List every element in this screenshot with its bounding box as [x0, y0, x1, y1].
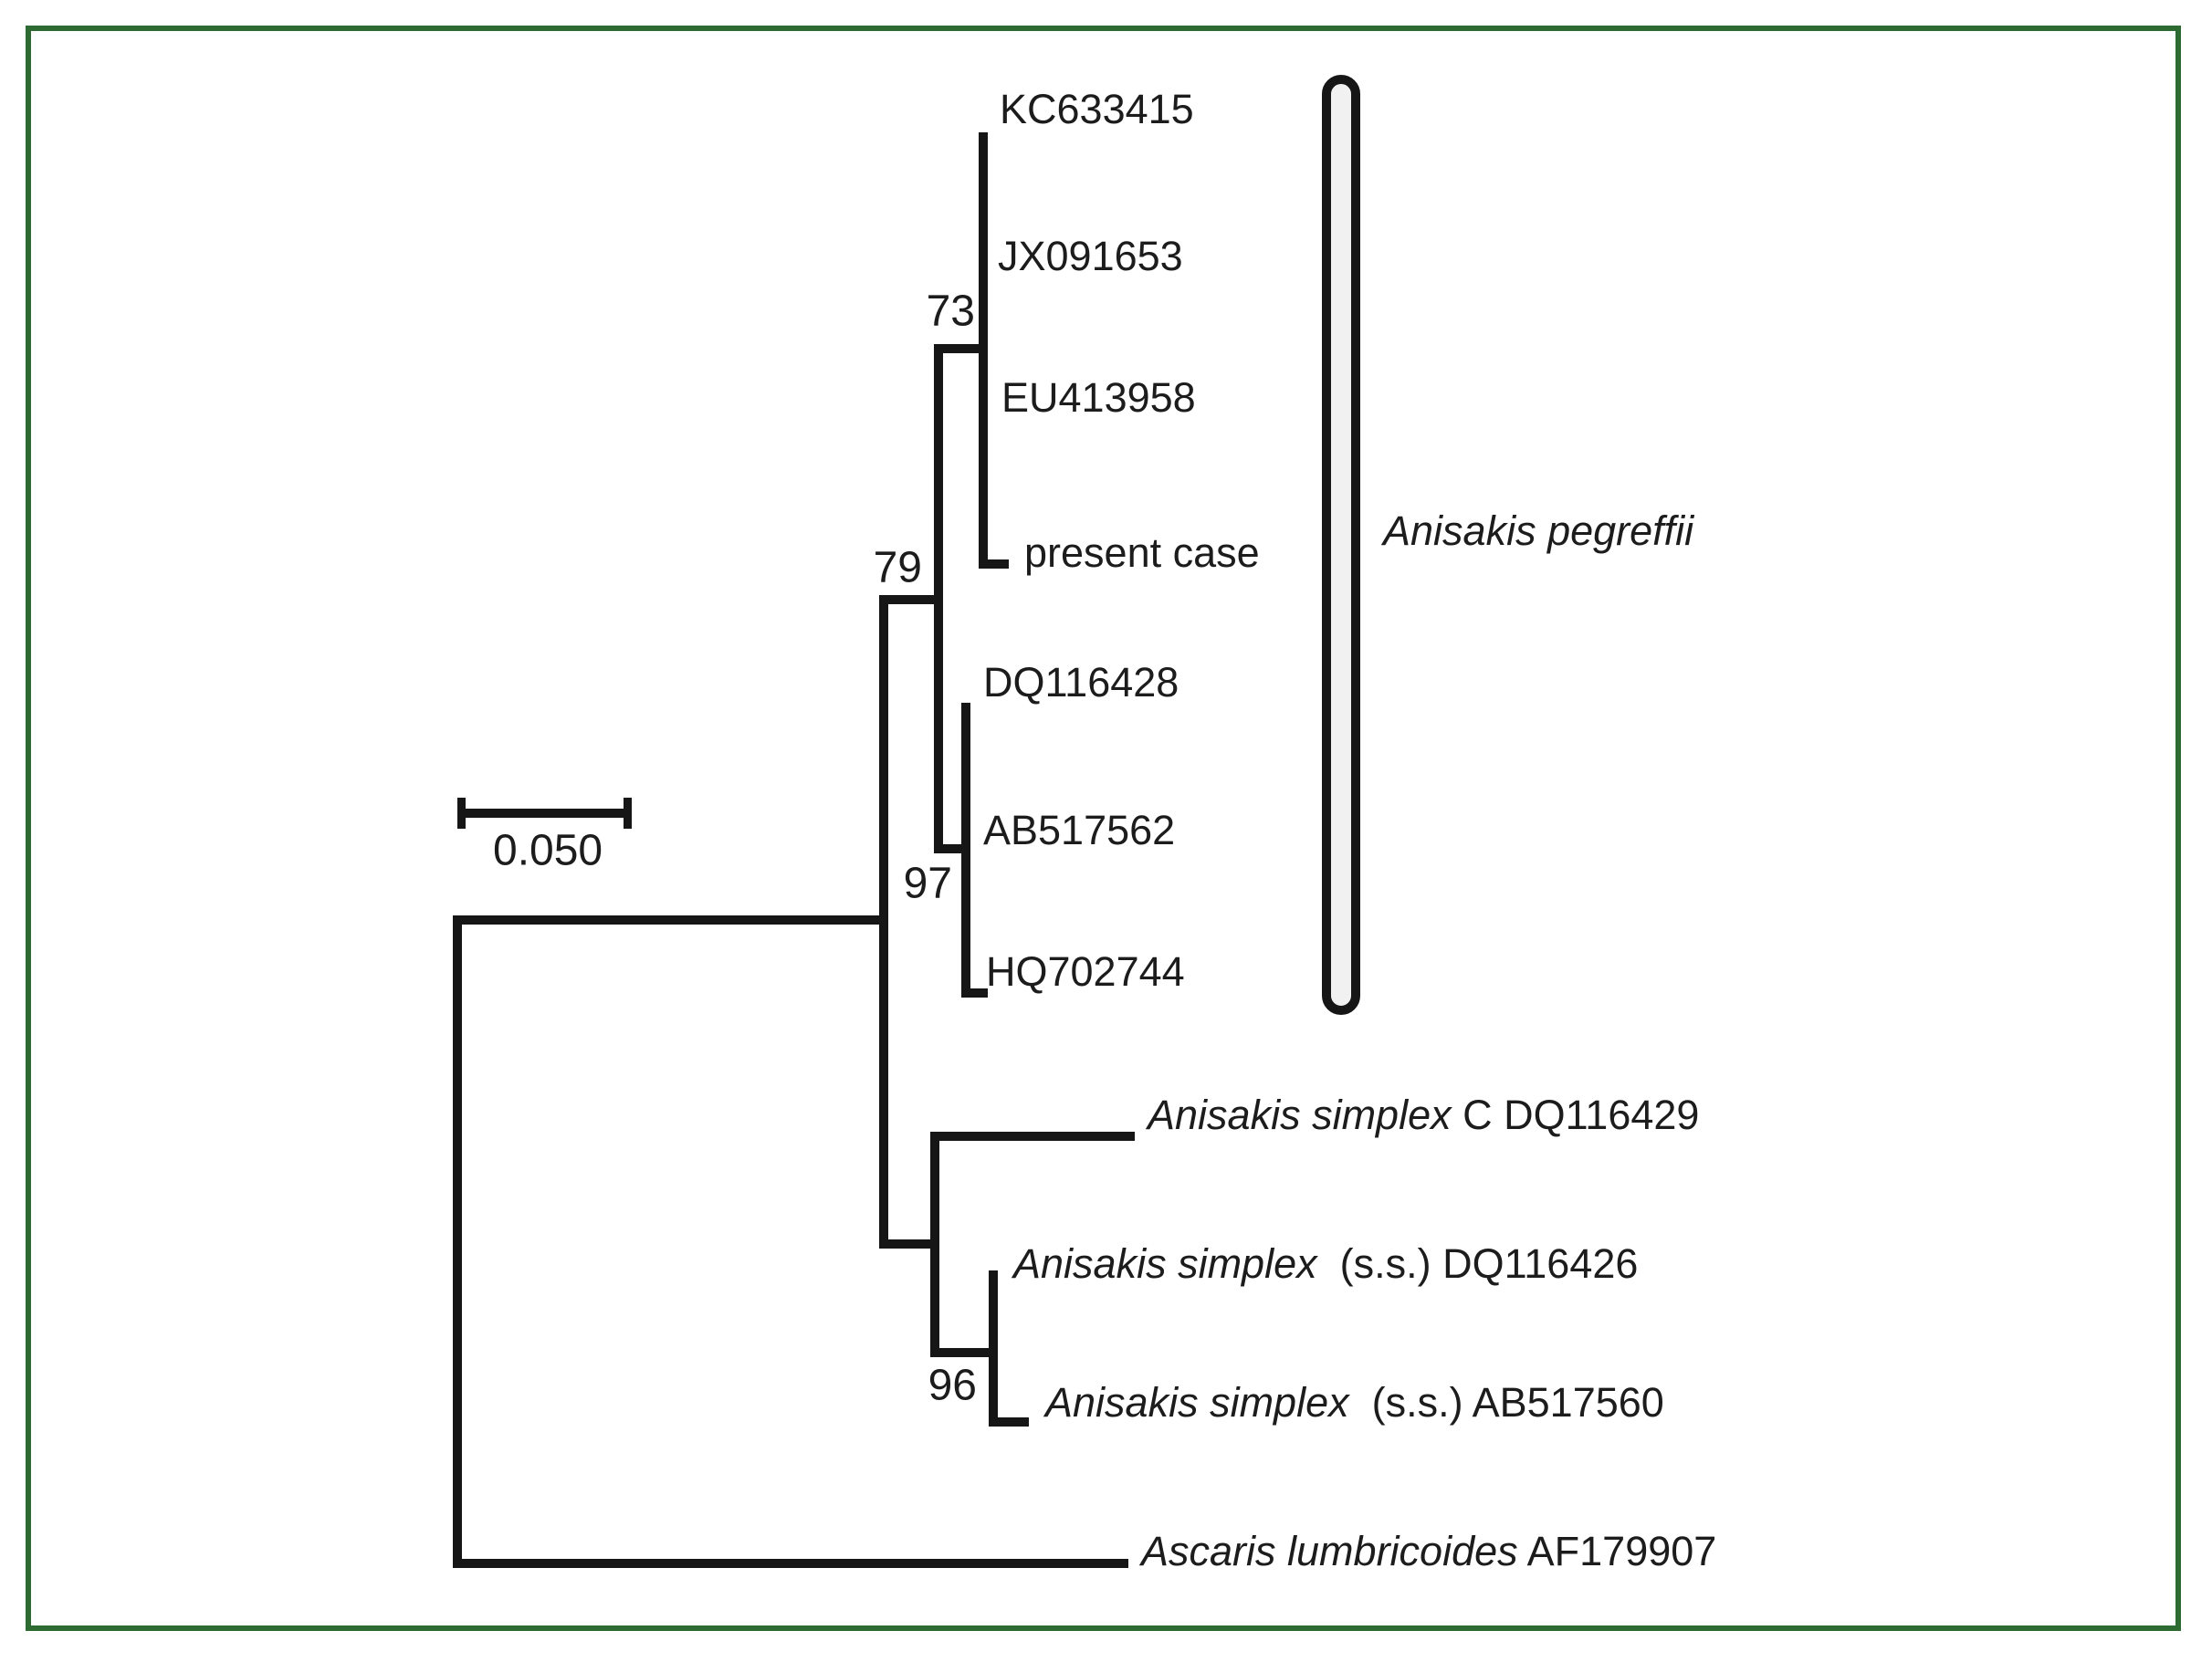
branch-connector-pegreffii-clade: [934, 344, 943, 853]
tip-text: C DQ116429: [1452, 1092, 1700, 1138]
tip-text: (s.s.) DQ116426: [1317, 1240, 1639, 1287]
tip-label-hq702744: HQ702744: [986, 948, 1185, 996]
bootstrap-73: 73: [875, 287, 975, 337]
tip-text: HQ702744: [986, 948, 1185, 995]
tip-label-dq116428: DQ116428: [983, 659, 1179, 706]
bootstrap-97: 97: [852, 859, 952, 909]
tip-text: (s.s.) AB517560: [1349, 1379, 1664, 1426]
tip-text-italic: Anisakis simplex: [1148, 1092, 1452, 1138]
tip-text: KC633415: [1000, 86, 1194, 132]
tip-text: present case: [1024, 529, 1260, 576]
tip-text: EU413958: [1001, 374, 1196, 421]
branch-tip-ascaris: [453, 1559, 1128, 1568]
branch-connector-node-73: [979, 132, 988, 569]
branch-connector-anisakis-clade: [879, 595, 888, 1249]
bootstrap-79: 79: [822, 543, 922, 593]
branch-connector-node-96: [989, 1270, 998, 1427]
scale-bar-left-tick: [457, 798, 466, 829]
bootstrap-96: 96: [876, 1361, 977, 1411]
branch-tip-hq702744: [961, 988, 988, 998]
branch-tip-present-case: [979, 559, 1009, 569]
scale-bar-label: 0.050: [493, 826, 603, 876]
tip-label-present-case: present case: [1024, 529, 1260, 577]
tip-label-jx091653: JX091653: [998, 233, 1183, 280]
scale-bar: [461, 809, 627, 818]
clade-bracket-capsule: [1322, 75, 1360, 1015]
tip-text: JX091653: [998, 233, 1183, 279]
scale-bar-right-tick: [624, 798, 632, 829]
tip-label-anisakis-simplex-ss-ab517560: Anisakis simplex (s.s.) AB517560: [1045, 1379, 1664, 1427]
tip-text: AB517562: [983, 807, 1175, 853]
tip-label-anisakis-simplex-ss-dq116426: Anisakis simplex (s.s.) DQ116426: [1013, 1240, 1638, 1288]
branch-connector-simplex-clade: [930, 1132, 939, 1357]
branch-tip-ab517560: [989, 1417, 1029, 1427]
branch-connector-node-97: [961, 703, 970, 998]
branch-to-node-96: [930, 1348, 998, 1357]
tip-label-ab517562: AB517562: [983, 807, 1175, 854]
tip-text-italic: Anisakis simplex: [1045, 1379, 1349, 1426]
phylogenetic-tree-figure: 0.050 73 79 97 96 KC633415 JX091653 EU41…: [0, 0, 2212, 1662]
branch-root-vertical: [453, 915, 462, 1568]
tip-label-anisakis-simplex-c: Anisakis simplex C DQ116429: [1148, 1092, 1699, 1139]
tip-label-ascaris-lumbricoides: Ascaris lumbricoides AF179907: [1141, 1528, 1716, 1575]
clade-bracket-label: Anisakis pegreffii: [1383, 507, 1693, 555]
clade-label-italic: Anisakis pegreffii: [1383, 507, 1693, 554]
tip-text: DQ116428: [983, 659, 1179, 706]
branch-tip-simplex-c: [930, 1132, 1135, 1141]
tip-text: AF179907: [1518, 1528, 1717, 1574]
tip-text-italic: Anisakis simplex: [1013, 1240, 1317, 1287]
tip-text-italic: Ascaris lumbricoides: [1141, 1528, 1518, 1574]
tip-label-kc633415: KC633415: [1000, 86, 1194, 133]
branch-root-horizontal: [453, 915, 888, 925]
tip-label-eu413958: EU413958: [1001, 374, 1196, 422]
